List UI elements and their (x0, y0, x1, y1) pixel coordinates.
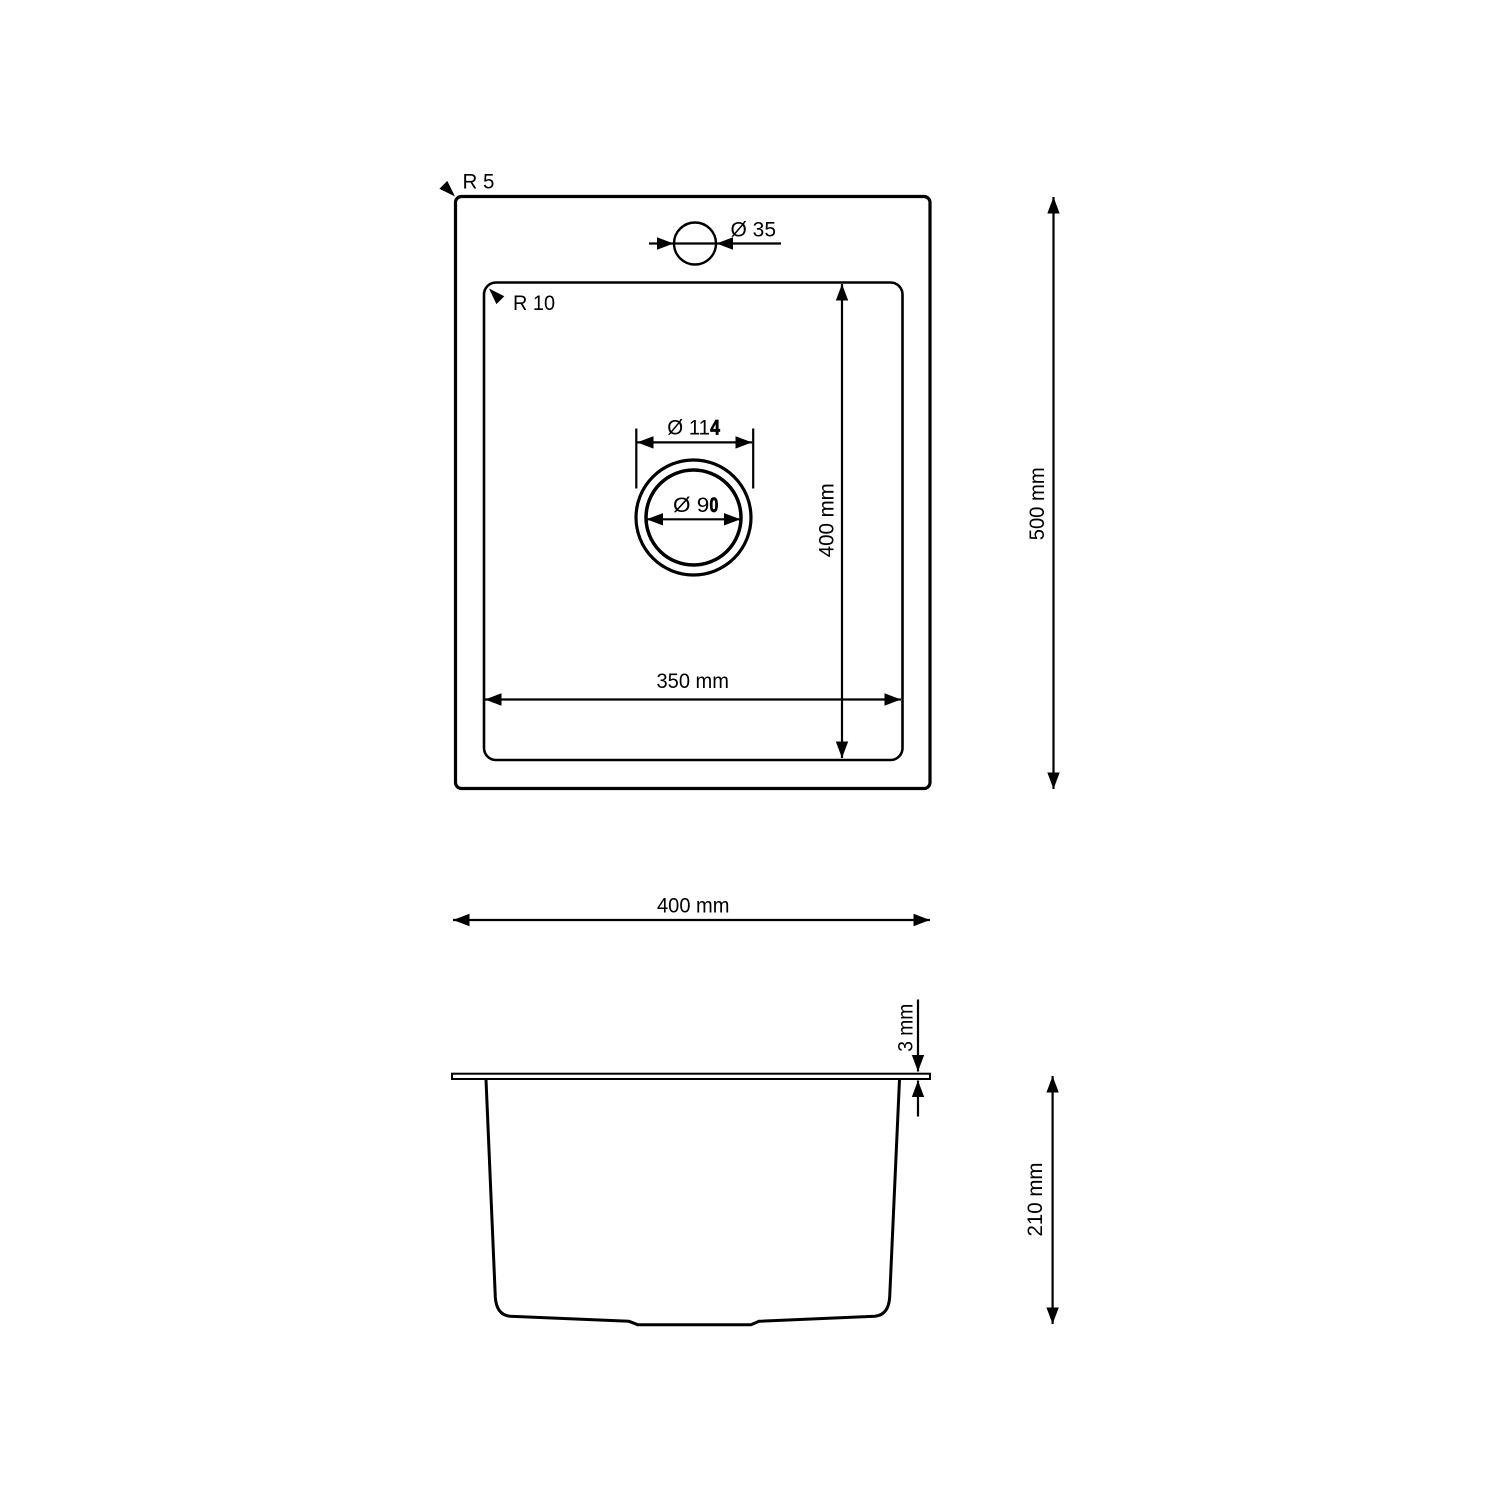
svg-text:0: 0 (710, 494, 719, 517)
svg-text:350 mm: 350 mm (657, 670, 730, 693)
svg-text:400 mm: 400 mm (657, 895, 730, 918)
svg-text:Ø 9: Ø 9 (673, 494, 709, 517)
svg-text:Ø 11: Ø 11 (667, 416, 710, 439)
svg-text:210 mm: 210 mm (1024, 1163, 1047, 1237)
svg-text:4: 4 (710, 416, 720, 439)
svg-text:400 mm: 400 mm (816, 483, 839, 557)
svg-text:500 mm: 500 mm (1026, 467, 1049, 540)
svg-text:R 10: R 10 (513, 292, 555, 315)
svg-text:3 mm: 3 mm (895, 1004, 918, 1052)
svg-text:R 5: R 5 (463, 170, 495, 193)
svg-text:Ø 35: Ø 35 (731, 219, 777, 242)
